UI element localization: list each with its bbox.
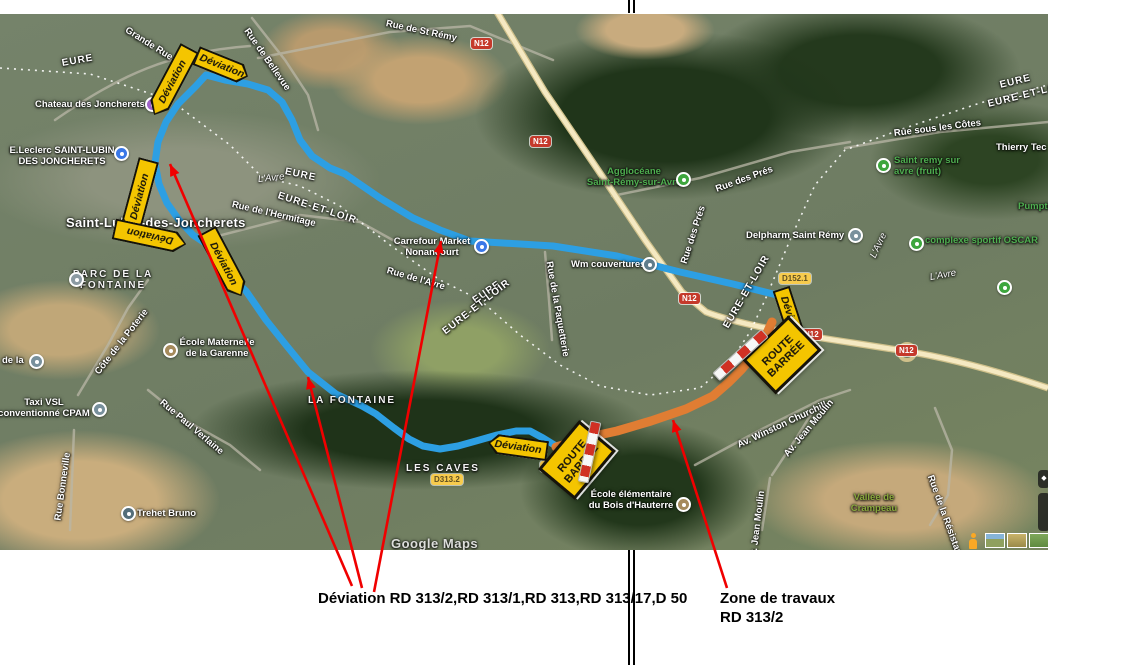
green-poi-icon[interactable] (997, 280, 1012, 295)
map-canvas[interactable]: Grande Rue Rue de Bellevue Rue de St Rém… (0, 0, 1148, 665)
n12-shield-2: N12 (530, 136, 551, 147)
detour-note: Déviation RD 313/2,RD 313/1,RD 313,RD 31… (318, 589, 687, 608)
poi-label-de-la[interactable]: de la (2, 355, 24, 366)
poi-label-delpharm[interactable]: Delpharm Saint Rémy (746, 230, 844, 241)
google-maps-watermark: Google Maps (391, 538, 478, 549)
poi-label-parc-fontaine[interactable]: PARC DE LAFONTAINE (73, 269, 153, 291)
poi-label-ecole-elementaire[interactable]: École élémentairedu Bois d'Hauterre (589, 489, 674, 511)
poi-label-thierry-tec[interactable]: Thierry Tec (996, 142, 1047, 153)
generic-poi-icon-de-la[interactable] (29, 354, 44, 369)
poi-label-complexe-oscar[interactable]: complexe sportif OSCAR (925, 235, 1038, 246)
poi-label-pumptrack[interactable]: Pumptr (1018, 201, 1051, 212)
area-label-la-fontaine: LA FONTAINE (308, 395, 396, 406)
fruit-poi-icon[interactable] (876, 158, 891, 173)
shopping-poi-icon-carrefour[interactable] (474, 239, 489, 254)
works-zone-note-line2: RD 313/2 (720, 608, 835, 627)
works-zone-note-line1: Zone de travaux (720, 589, 835, 608)
shopping-poi-icon-leclerc[interactable] (114, 146, 129, 161)
poi-label-agglomerane[interactable]: AgglocéaneSaint-Rémy-sur-Avre (587, 166, 681, 188)
area-label-les-caves: LES CAVES (406, 463, 480, 474)
layer-thumbnail-3[interactable] (1029, 533, 1049, 548)
school-poi-icon-maternelle[interactable] (163, 343, 178, 358)
business-poi-icon-wm[interactable] (642, 257, 657, 272)
n12-shield: N12 (471, 38, 492, 49)
divider-line-top-1 (628, 0, 630, 13)
area-label-vallee-crampeau: Vallée deCrampeau (851, 492, 897, 514)
poi-label-wm-couvertures[interactable]: Wm couvertures (571, 259, 645, 270)
page: Grande Rue Rue de Bellevue Rue de St Rém… (0, 0, 1148, 665)
poi-label-ecole-maternelle[interactable]: École Maternellede la Garenne (180, 337, 255, 359)
taxi-poi-icon[interactable] (92, 402, 107, 417)
divider-line-top-2 (633, 0, 635, 13)
poi-label-carrefour[interactable]: Carrefour MarketNonancourt (394, 236, 471, 258)
poi-label-taxi-vsl[interactable]: Taxi VSLconventionné CPAM (0, 397, 90, 419)
map-control-button[interactable]: ◆ (1038, 470, 1050, 488)
layer-thumbnail-2[interactable] (1007, 533, 1027, 548)
d152-shield: D152.1 (779, 273, 811, 284)
n12-shield-5: N12 (896, 345, 917, 356)
town-label-saint-lubin: Saint-Lubin-des-Joncherets (66, 217, 246, 228)
d313-2-shield: D313.2 (431, 474, 463, 485)
business-poi-icon-trehet[interactable] (121, 506, 136, 521)
poi-label-chateau[interactable]: Chateau des Joncherets (35, 99, 145, 110)
factory-poi-icon-delpharm[interactable] (848, 228, 863, 243)
pegman-icon[interactable] (966, 533, 980, 549)
poi-label-trehet-bruno[interactable]: Trehet Bruno (137, 508, 196, 519)
works-zone-note: Zone de travaux RD 313/2 (720, 589, 835, 627)
n12-shield-3: N12 (679, 293, 700, 304)
sports-poi-icon-oscar[interactable] (909, 236, 924, 251)
park-poi-icon[interactable] (69, 272, 84, 287)
green-poi-icon-agglomerane[interactable] (676, 172, 691, 187)
poi-label-leclerc[interactable]: E.Leclerc SAINT-LUBINDES JONCHERETS (9, 145, 114, 167)
layer-thumbnail-1[interactable] (985, 533, 1005, 548)
school-poi-icon-elementaire[interactable] (676, 497, 691, 512)
map-zoom-control[interactable] (1038, 493, 1050, 531)
poi-label-saint-remy-fruit[interactable]: Saint remy suravre (fruit) (894, 155, 960, 177)
